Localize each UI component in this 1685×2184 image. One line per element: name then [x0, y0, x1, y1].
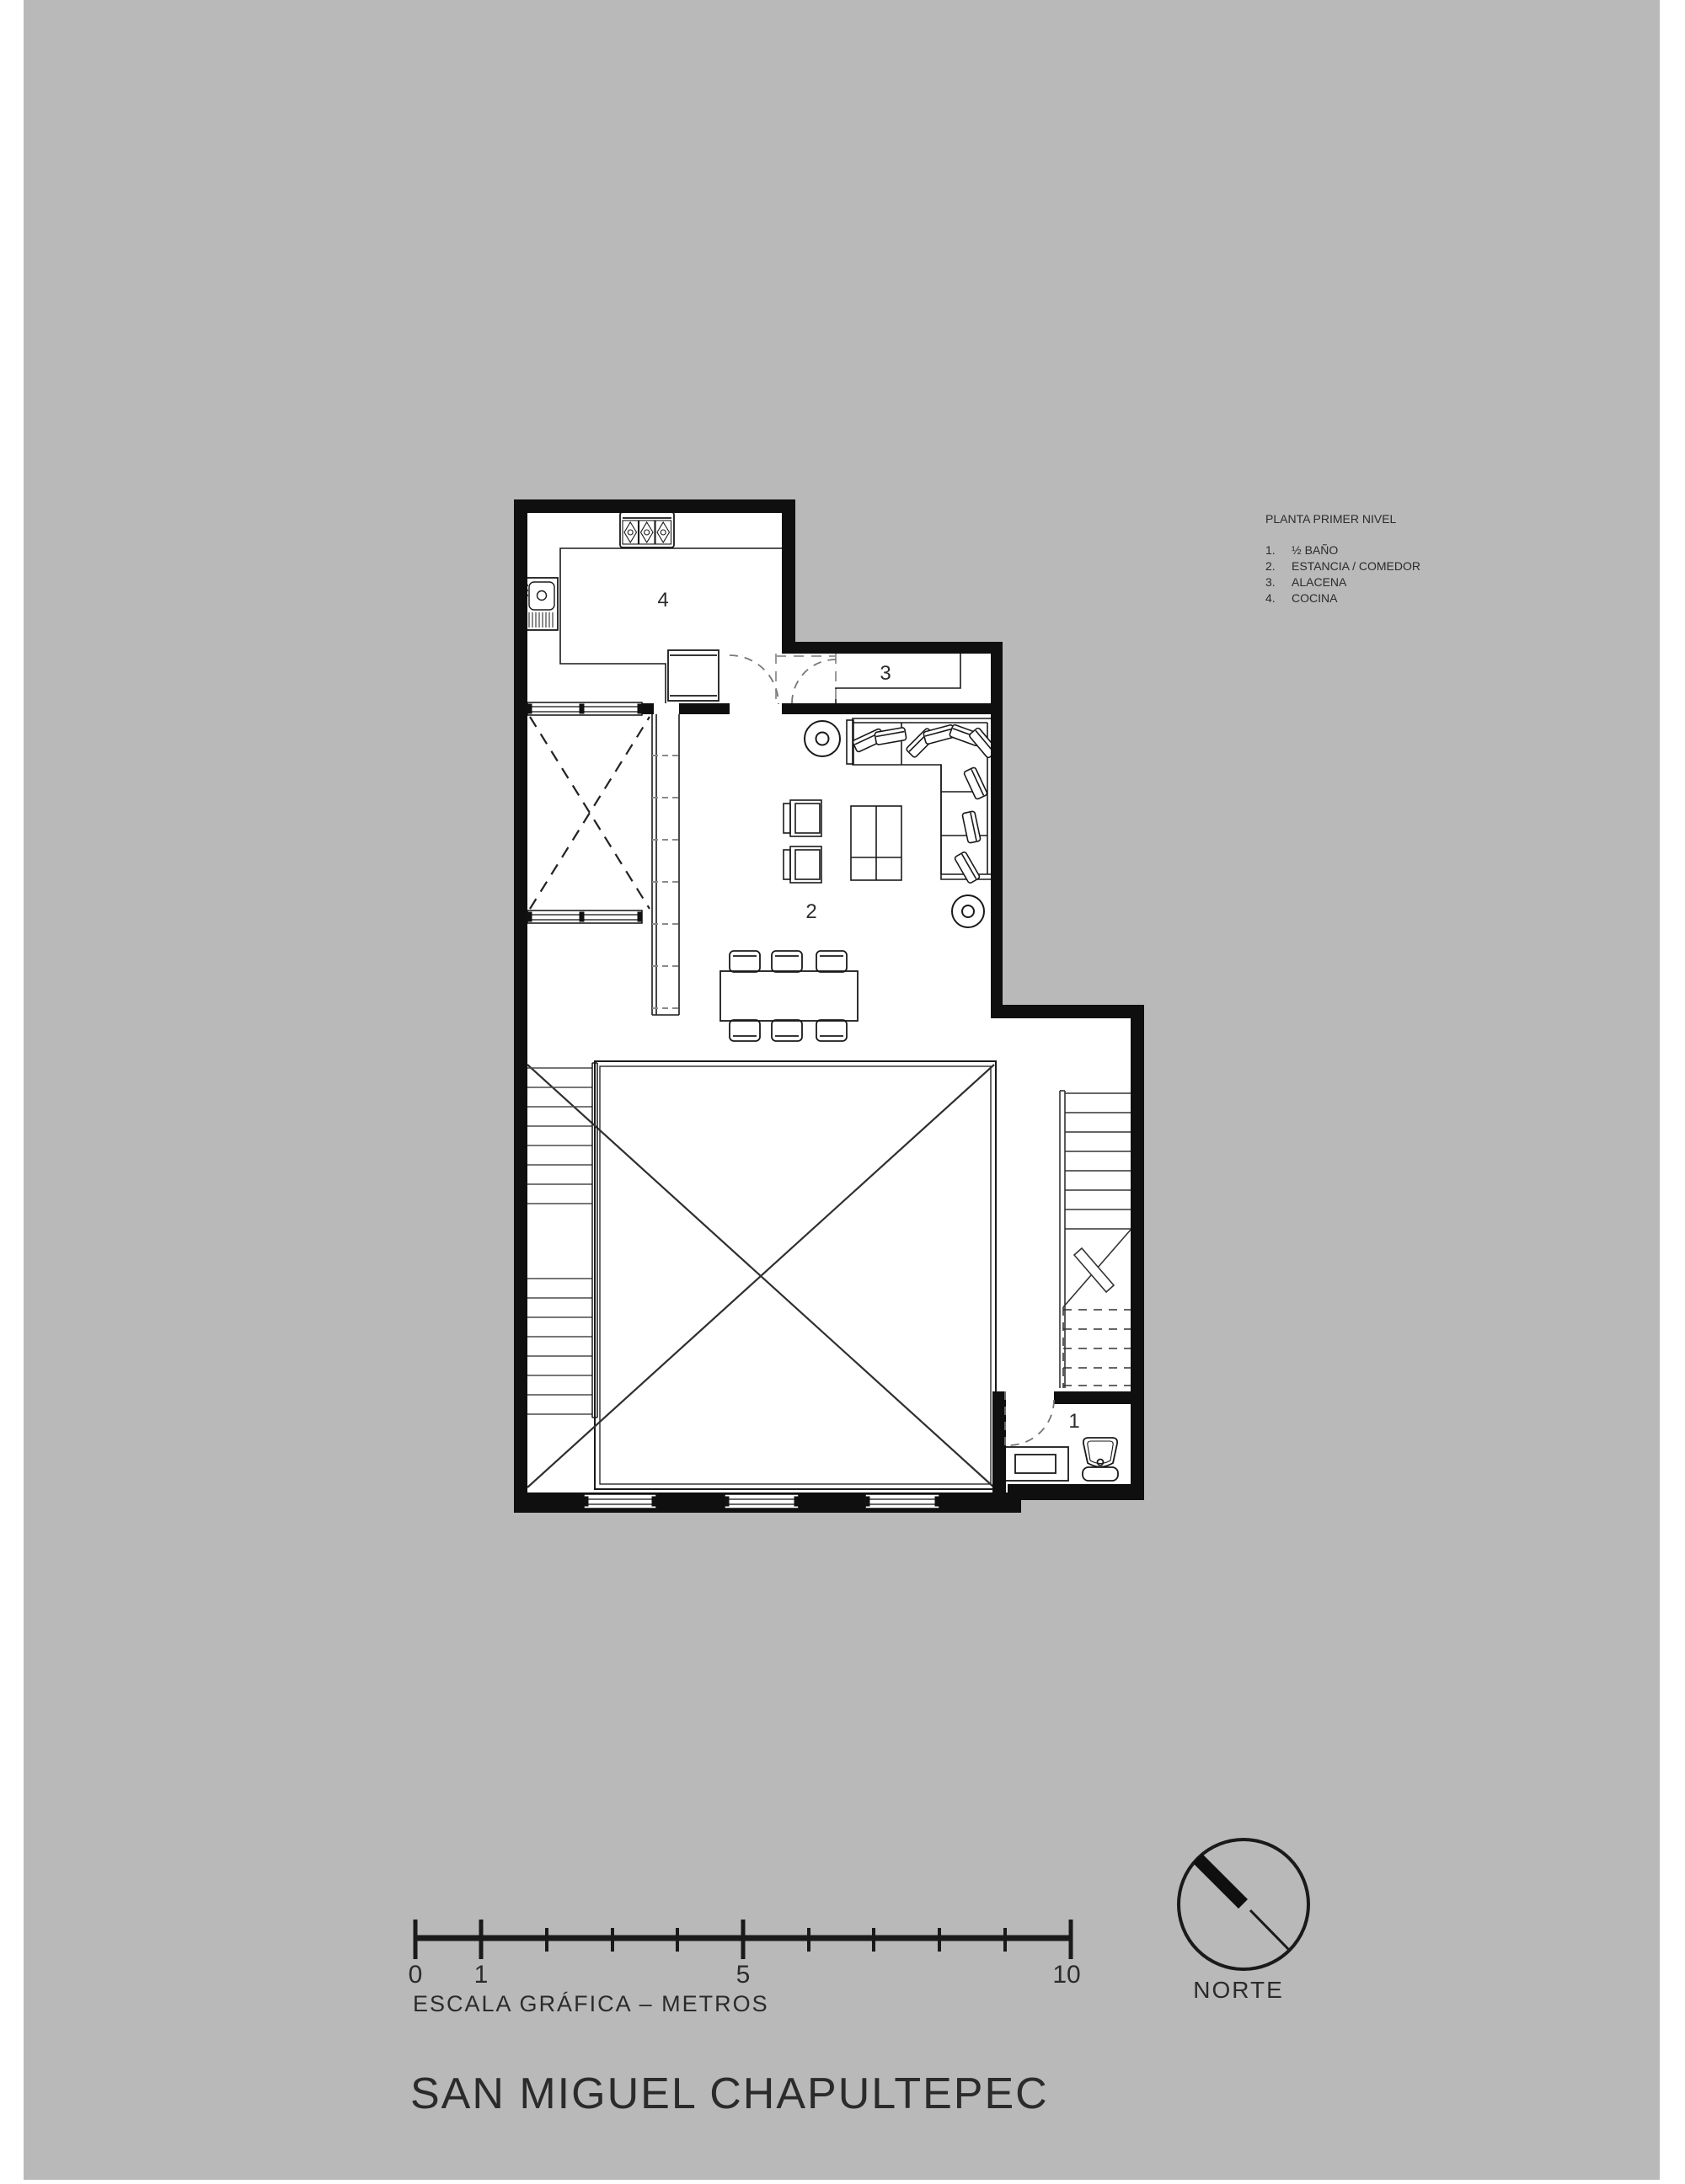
window-south-2 — [725, 1494, 799, 1509]
wall-pantry-top — [782, 642, 1003, 654]
legend-item-num: 3. — [1265, 575, 1276, 589]
scale-tick-10: 10 — [1052, 1961, 1080, 1989]
wall-left — [514, 499, 527, 1513]
wall-kitchen-right — [782, 499, 795, 654]
drawing-sheet: 4 3 2 1 PLANTA PRIMER NIVEL 1. ½ BAÑO 2.… — [0, 0, 1685, 2180]
wall-stub-patio — [642, 703, 654, 714]
wall-stub-mid — [679, 703, 730, 714]
window-south-3 — [865, 1494, 939, 1509]
legend-item-num: 2. — [1265, 559, 1276, 573]
legend-item-label: ALACENA — [1292, 575, 1347, 589]
room-label-alacena: 3 — [880, 662, 891, 685]
wall-right-lower — [1131, 1005, 1144, 1500]
room-label-cocina: 4 — [657, 589, 668, 611]
scale-tick-0: 0 — [409, 1961, 423, 1989]
window-patio-bottom — [527, 910, 642, 923]
scale-tick-5: 5 — [736, 1961, 751, 1989]
legend-item-label: COCINA — [1292, 591, 1338, 605]
window-south-1 — [584, 1494, 656, 1509]
legend-item-num: 1. — [1265, 543, 1276, 557]
room-label-bath: 1 — [1068, 1410, 1079, 1433]
window-patio-top — [527, 702, 642, 715]
scale-caption: ESCALA GRÁFICA – METROS — [413, 1991, 769, 2016]
wall-right-upper — [991, 642, 1003, 1018]
legend-title: PLANTA PRIMER NIVEL — [1265, 512, 1397, 526]
room-label-estancia: 2 — [805, 900, 816, 923]
wall-top — [514, 499, 795, 513]
wall-pantry-bottom — [782, 703, 991, 714]
north-label: NORTE — [1193, 1977, 1284, 2003]
legend-item-label: ESTANCIA / COMEDOR — [1292, 559, 1420, 573]
scale-tick-1: 1 — [474, 1961, 489, 1989]
sheet-title: SAN MIGUEL CHAPULTEPEC — [410, 2069, 1049, 2118]
wall-step — [991, 1005, 1144, 1018]
legend-item-num: 4. — [1265, 591, 1276, 605]
wall-bath-left — [992, 1391, 1006, 1513]
wall-bath-top — [1054, 1391, 1131, 1404]
wall-bath-bottom — [1008, 1484, 1144, 1500]
legend-item-label: ½ BAÑO — [1292, 543, 1338, 557]
floor-plan-canvas: 4 3 2 1 PLANTA PRIMER NIVEL 1. ½ BAÑO 2.… — [0, 0, 1685, 2180]
